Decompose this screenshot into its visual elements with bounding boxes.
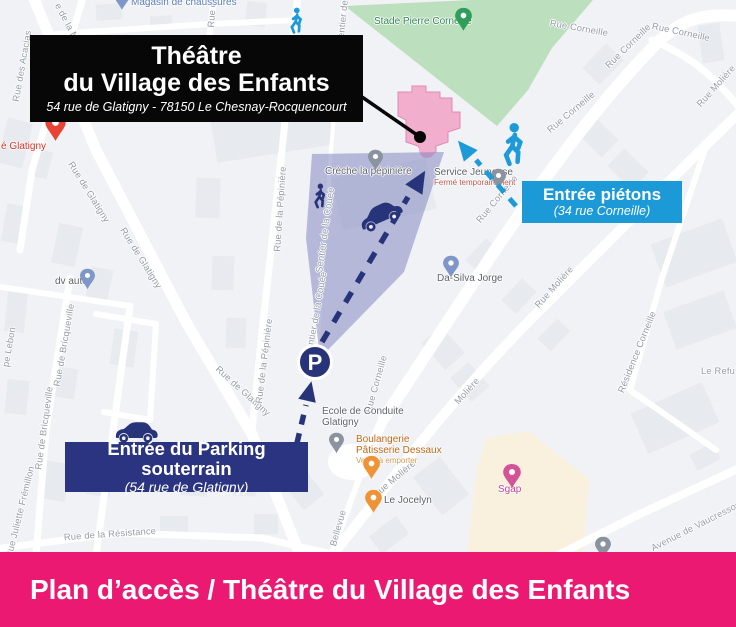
banner-title: Plan d’accès / Théâtre du Village des En… <box>0 574 630 606</box>
pedestrian-walker-icon <box>506 123 520 164</box>
car-route-arrow <box>405 166 433 195</box>
title-connector-dot <box>414 131 426 143</box>
bottom-banner: Plan d’accès / Théâtre du Village des En… <box>0 552 736 627</box>
pedestrian-entrance-title: Entrée piétons <box>522 186 682 204</box>
parking-entrance-box: Entrée du Parking souterrain (54 rue de … <box>65 442 308 492</box>
car-icon-route <box>357 197 406 234</box>
pedestrian-entrance-subtitle: (34 rue Corneille) <box>522 204 682 218</box>
pedestrian-route-dashes <box>476 160 516 206</box>
top-walker-icon <box>292 8 301 33</box>
theatre-title-box: Théâtre du Village des Enfants 54 rue de… <box>30 35 363 122</box>
theatre-title-line1: Théâtre <box>30 43 363 70</box>
access-map-flyer: Rue des Acaciase de la MaRue deSentier d… <box>0 0 736 627</box>
path-walker-icon <box>316 184 324 208</box>
theatre-address: 54 rue de Glatigny - 78150 Le Chesnay-Ro… <box>30 100 363 114</box>
parking-route-arrow <box>298 379 320 403</box>
pedestrian-route-arrow <box>451 135 478 162</box>
parking-entrance-subtitle: (54 rue de Glatigny) <box>65 479 308 495</box>
title-connector-line <box>362 97 420 137</box>
pedestrian-entrance-box: Entrée piétons (34 rue Corneille) <box>522 181 682 223</box>
theatre-title-line2: du Village des Enfants <box>30 70 363 97</box>
parking-marker-letter: P <box>308 350 323 375</box>
parking-entrance-title: Entrée du Parking souterrain <box>65 439 308 479</box>
parking-route-dashes <box>297 405 306 443</box>
